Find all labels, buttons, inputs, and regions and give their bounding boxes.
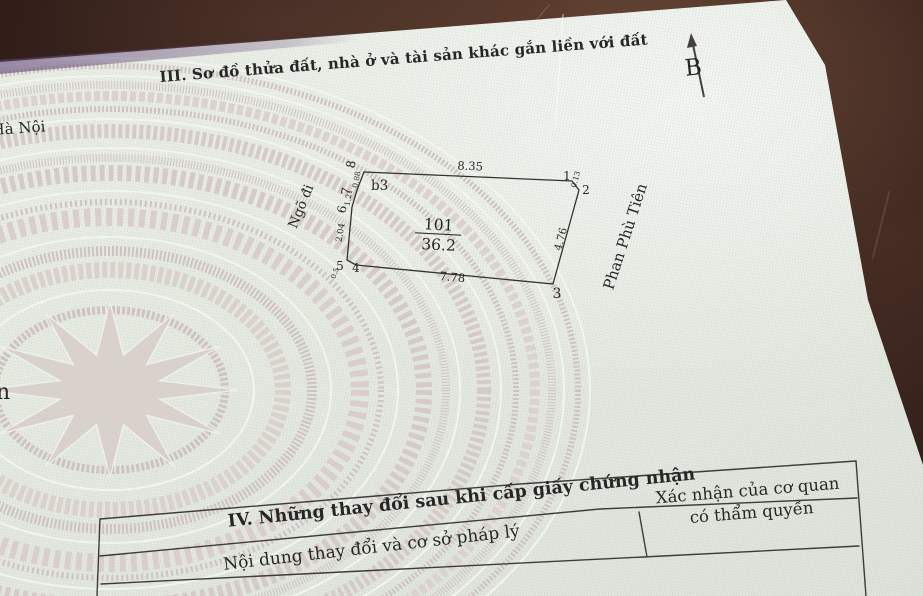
dim-1-2: 0.13: [569, 170, 582, 189]
parcel-area: 36.2: [421, 235, 456, 255]
dim-8-7: 0.88: [351, 170, 363, 188]
street-right-label: Phan Phù Tiên: [600, 181, 651, 292]
vertex-3: 3: [553, 286, 562, 302]
table-column-divider: [639, 512, 647, 557]
table-row-divider: [101, 546, 859, 584]
dim-right: 4.76: [552, 226, 570, 252]
parcel-number: 101: [423, 215, 453, 235]
adjacent-block-label: b3: [371, 178, 388, 194]
photo-of-land-certificate: III. Sơ đồ thửa đất, nhà ở và tài sản kh…: [0, 0, 923, 596]
margin-text-ha-noi: Hà Nội: [0, 117, 46, 139]
vertex-4: 4: [352, 261, 360, 275]
vertex-1: 1: [563, 169, 571, 183]
dim-bottom: 7.78: [439, 269, 466, 285]
table-right-border: [856, 461, 866, 596]
certificate-content: III. Sơ đồ thửa đất, nhà ở và tài sản kh…: [0, 0, 923, 596]
dim-top: 8.35: [457, 158, 483, 173]
paper-crease: [555, 14, 563, 132]
margin-text-n: n: [0, 380, 10, 405]
section-iii-title: III. Sơ đồ thửa đất, nhà ở và tài sản kh…: [159, 30, 648, 85]
vertex-5: 5: [336, 259, 344, 273]
compass-north-label: B: [684, 54, 704, 82]
dim-6-5: 2.04: [334, 222, 347, 242]
vertex-8: 8: [344, 159, 359, 169]
vertex-2: 2: [582, 183, 590, 197]
compass-north-arrow: B: [684, 33, 704, 97]
